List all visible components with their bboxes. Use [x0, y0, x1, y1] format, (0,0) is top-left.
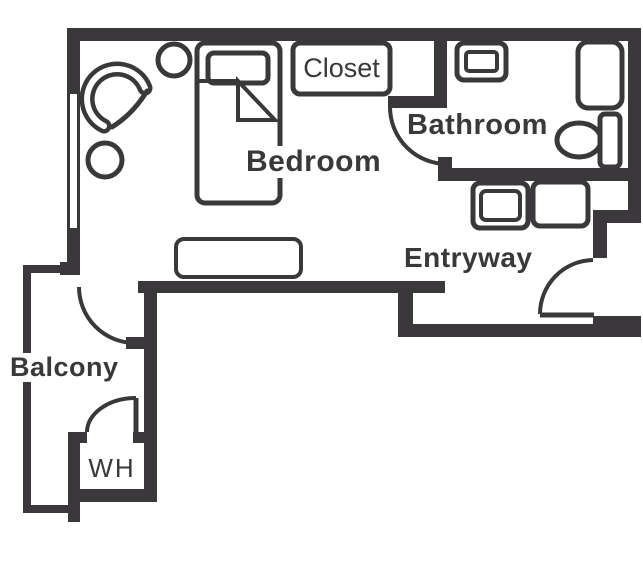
wall-interior-vertical [144, 281, 157, 502]
window [70, 94, 77, 228]
wall-wh-bottom [68, 489, 157, 502]
room-label-water-heater: WH [80, 450, 144, 485]
bench [176, 239, 301, 277]
wall-wh-right-stub [133, 432, 157, 443]
wall-entry-side [593, 210, 607, 258]
armchair-shell-inner [87, 69, 145, 126]
shower-icon [578, 42, 622, 108]
balcony-door-arc [79, 287, 135, 343]
room-label-bathroom: Bathroom [407, 111, 548, 140]
toilet-bowl-icon [557, 123, 601, 157]
room-label-closet: Closet [295, 45, 388, 92]
room-label-bedroom: Bedroom [243, 146, 384, 178]
washer-drum [481, 191, 520, 220]
wall-balcony-left [23, 265, 31, 513]
armchair-seat-edge [112, 91, 147, 127]
wall-wh-top-stub [68, 432, 87, 443]
wall-bathroom-bottom [438, 168, 641, 181]
side-table-icon [158, 44, 190, 76]
toilet-tank [600, 114, 620, 167]
room-label-balcony: Balcony [7, 353, 122, 382]
entry-door-arc [540, 260, 593, 314]
side-table-icon [88, 143, 122, 177]
walls [23, 28, 641, 522]
sink-basin [466, 52, 497, 71]
room-label-entryway: Entryway [404, 244, 533, 272]
floor-plan: Bedroom Closet Bathroom Entryway Balcony… [0, 0, 643, 585]
wall-balcony-top [23, 265, 70, 273]
water-heater-door-arc [87, 398, 136, 432]
wall-closet-flange [388, 96, 447, 108]
wall-entry-post [398, 293, 413, 337]
wall-right [628, 28, 641, 223]
wall-bedroom-bottom [138, 281, 445, 293]
wall-top [67, 28, 641, 41]
wall-wh-left [68, 432, 80, 522]
wall-bottom [398, 324, 641, 337]
dryer-icon [533, 182, 588, 226]
